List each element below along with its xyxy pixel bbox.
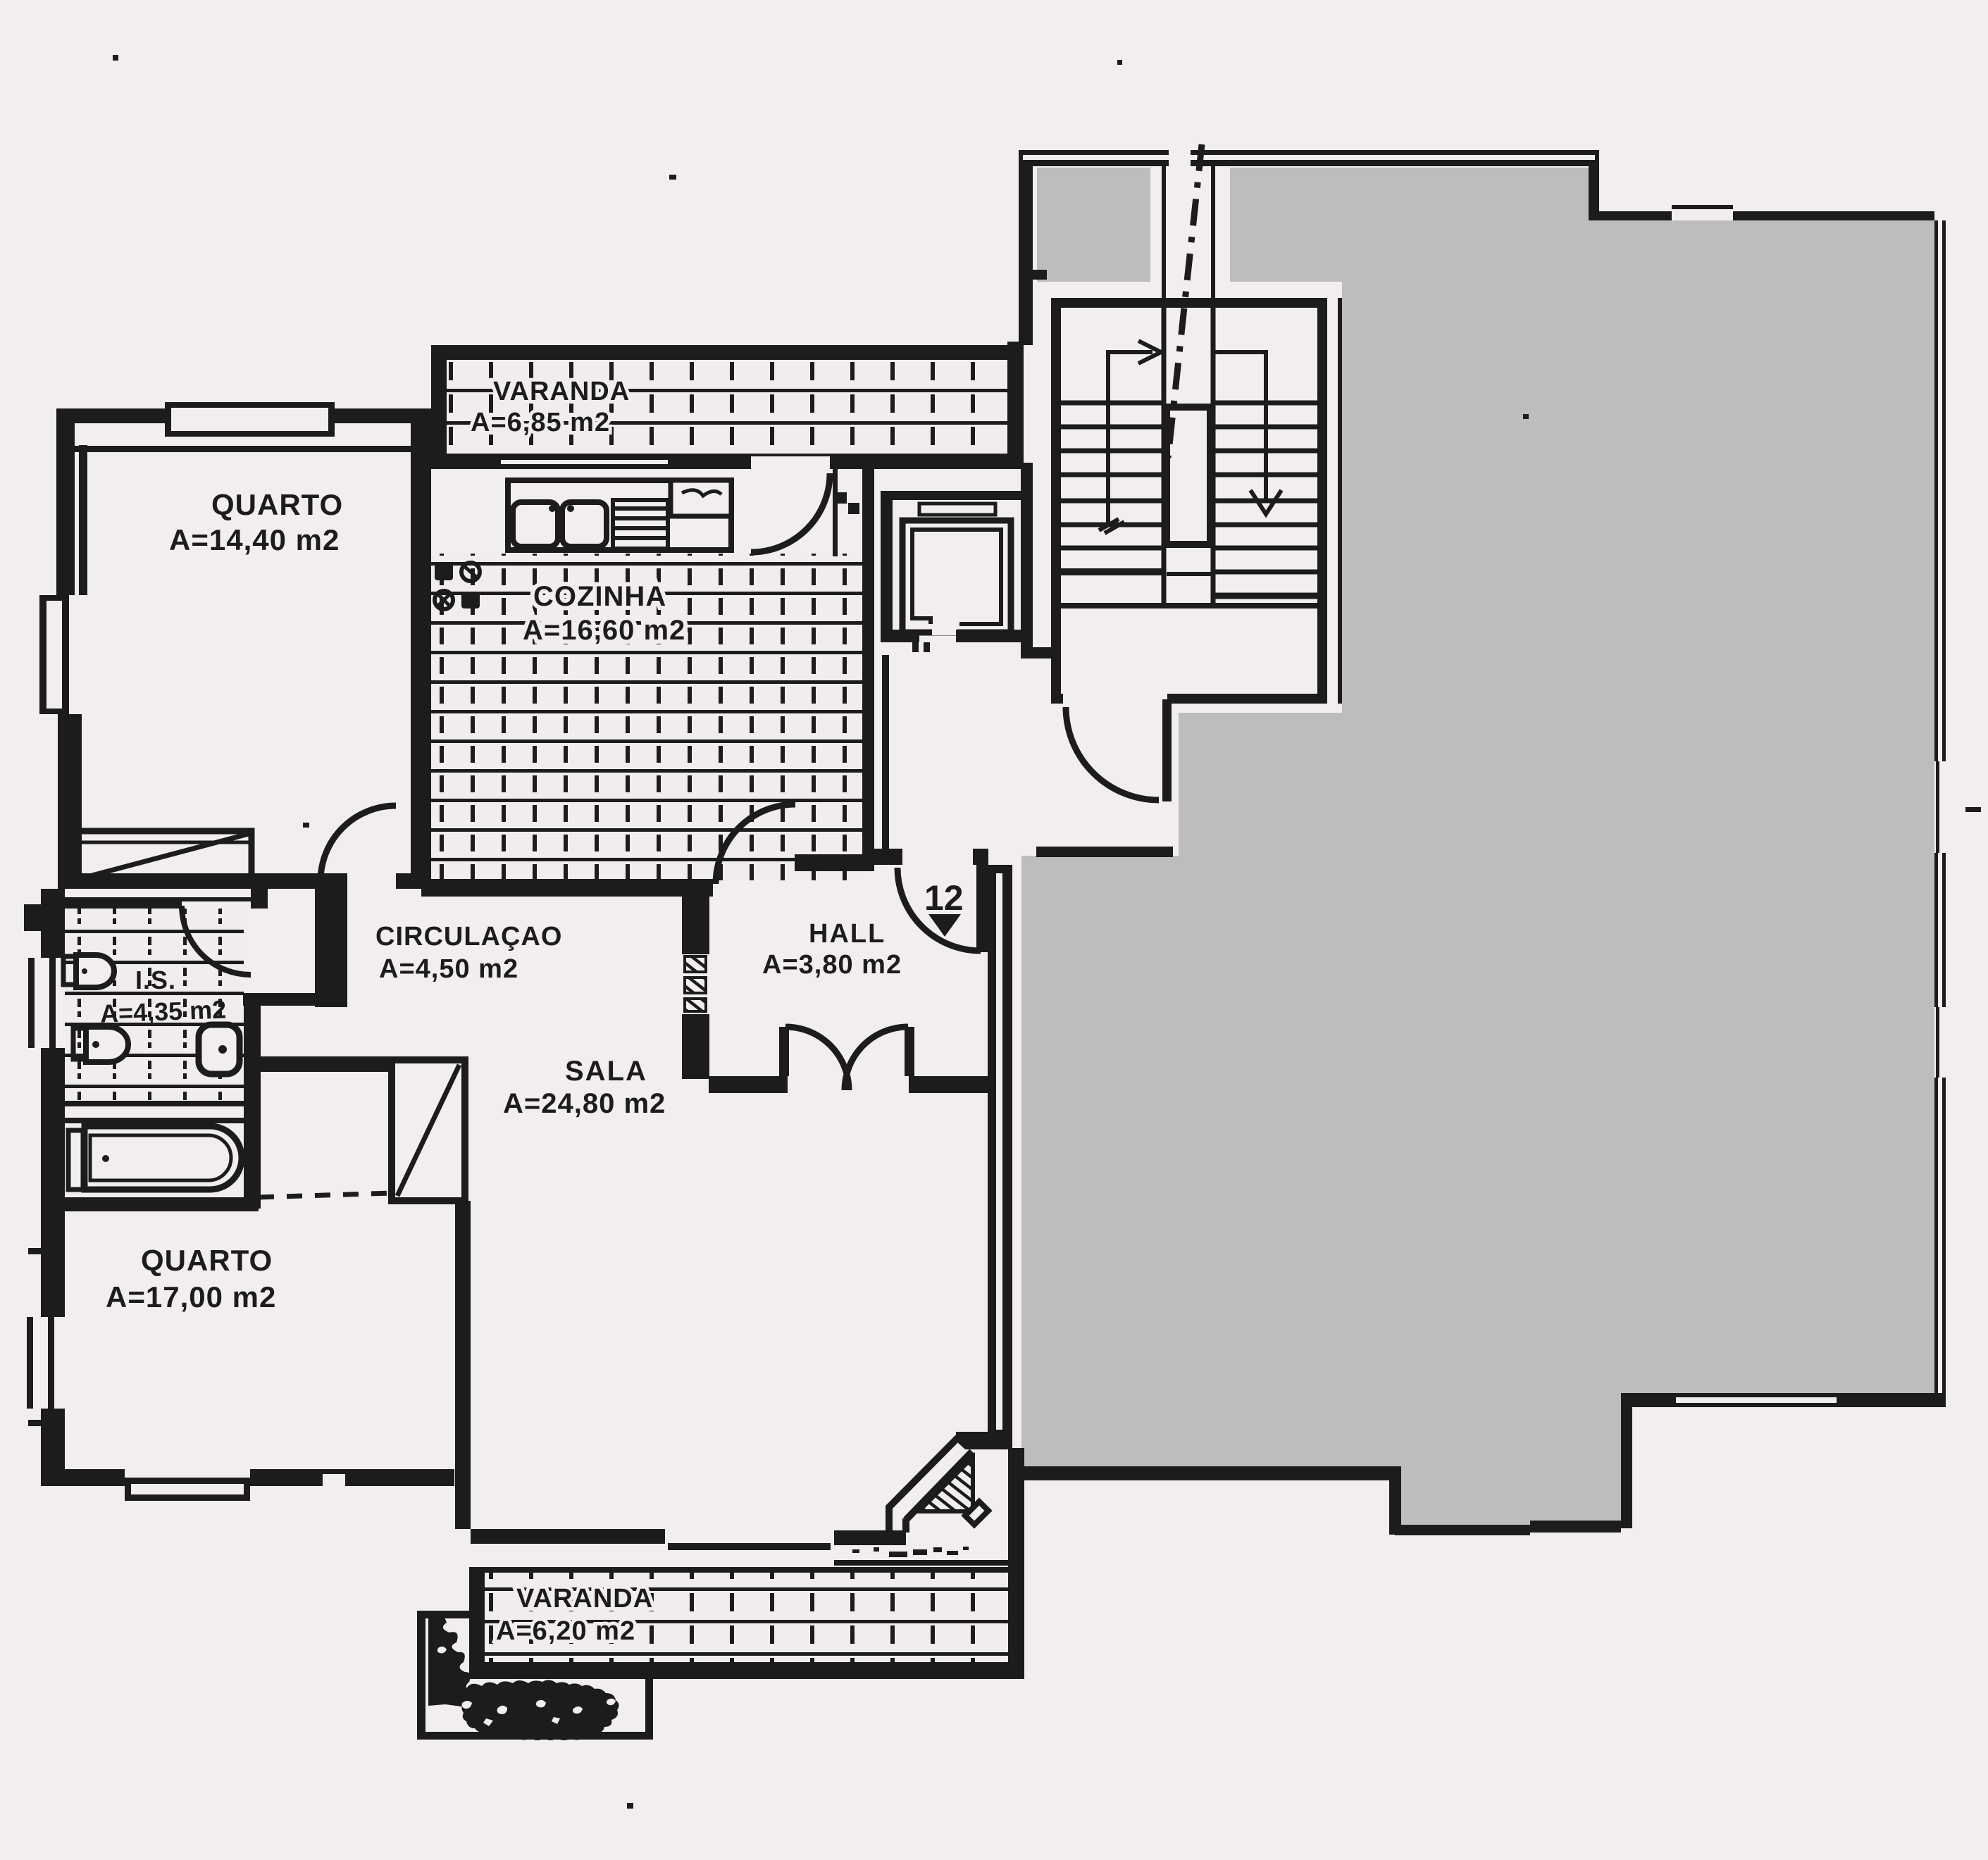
svg-text:A=14,40 m2: A=14,40 m2	[169, 523, 340, 556]
svg-text:HALL: HALL	[809, 919, 886, 949]
svg-text:VARANDA: VARANDA	[516, 1584, 653, 1614]
svg-text:QUARTO: QUARTO	[211, 488, 343, 521]
svg-text:A=4,50 m2: A=4,50 m2	[379, 954, 518, 984]
svg-text:A=6,85 m2: A=6,85 m2	[471, 408, 610, 437]
svg-text:VARANDA: VARANDA	[493, 377, 630, 406]
svg-text:SALA: SALA	[565, 1056, 647, 1087]
svg-text:12: 12	[924, 878, 964, 918]
svg-text:A=17,00 m2: A=17,00 m2	[106, 1280, 276, 1313]
svg-text:A=16,60 m2: A=16,60 m2	[523, 615, 685, 646]
svg-text:I.S.: I.S.	[135, 966, 176, 994]
svg-text:A=24,80 m2: A=24,80 m2	[503, 1088, 666, 1119]
svg-text:A=3,80 m2: A=3,80 m2	[762, 950, 902, 980]
svg-text:A=6,20 m2: A=6,20 m2	[496, 1616, 635, 1646]
svg-text:CIRCULAÇAO: CIRCULAÇAO	[375, 922, 562, 951]
svg-text:QUARTO: QUARTO	[141, 1244, 273, 1277]
svg-text:COZINHA: COZINHA	[533, 581, 666, 612]
svg-text:A=4,35 m2: A=4,35 m2	[99, 994, 226, 1028]
